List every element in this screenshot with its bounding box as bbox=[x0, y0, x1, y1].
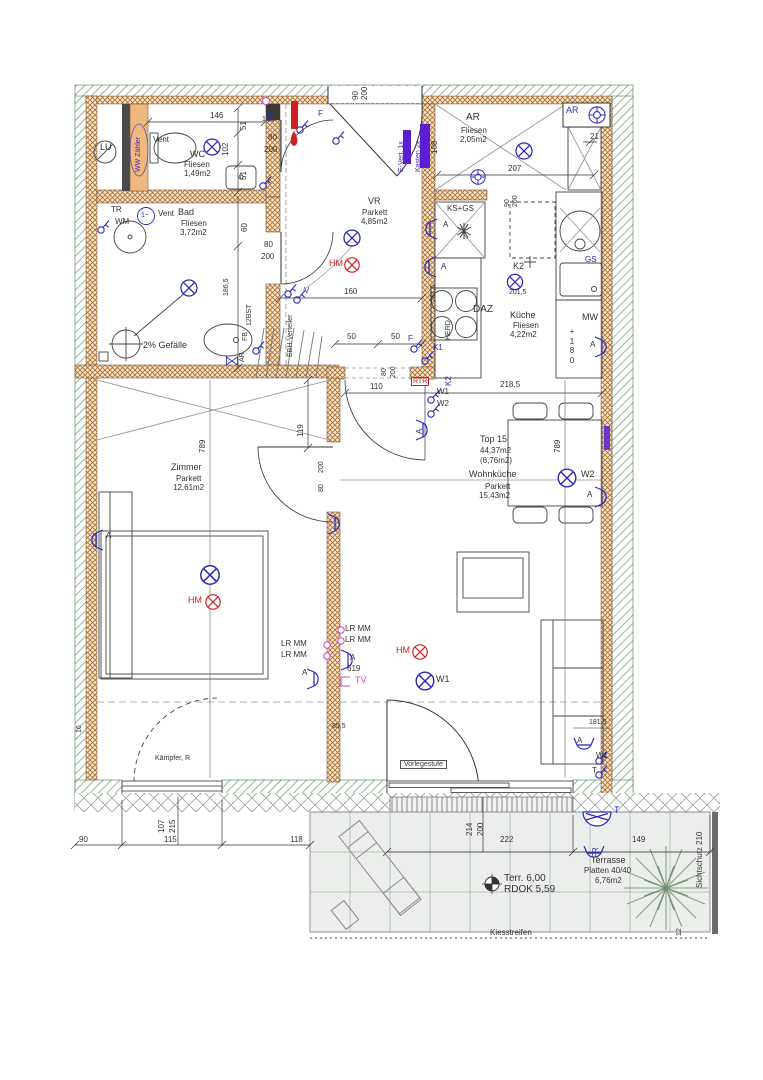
mw-height-label: + 1 8 0 bbox=[567, 327, 577, 365]
w2-label-kitchen: W2 bbox=[437, 400, 449, 408]
dim-218-5: 218,5 bbox=[500, 381, 520, 389]
rtr-label: RTR bbox=[411, 377, 429, 386]
dim-222: 222 bbox=[500, 836, 513, 844]
wc-vent-label: Vent bbox=[153, 136, 169, 144]
dim-149: 149 bbox=[632, 836, 645, 844]
kiesstreifen-note: Kiesstreifen bbox=[490, 929, 532, 937]
dim-619: 619 bbox=[347, 665, 360, 673]
ksgs-label: KS+GS bbox=[447, 205, 474, 213]
w2-label-wohn: W2 bbox=[581, 470, 595, 479]
dim-90-pass: 90 bbox=[504, 199, 511, 207]
wohn-room-name: Wohnküche bbox=[469, 470, 516, 479]
dim-85-5: 85,5 bbox=[332, 723, 346, 730]
dim-16: 16 bbox=[76, 725, 83, 733]
a-label-tv: A bbox=[350, 654, 355, 662]
dim-50-left: 50 bbox=[347, 333, 356, 341]
dim-789-zimmer: 789 bbox=[199, 440, 207, 453]
terrasse-name: Terrasse bbox=[591, 856, 626, 865]
vr-area: 4,85m2 bbox=[361, 218, 388, 226]
herd-label: HERD bbox=[445, 320, 452, 340]
a-label-mw: A bbox=[590, 341, 595, 349]
dim-160: 160 bbox=[344, 288, 357, 296]
wc-area: 1,49m2 bbox=[184, 170, 211, 178]
dim-21: 21 bbox=[590, 133, 599, 141]
w1-label-kitchen: W1 bbox=[437, 388, 449, 396]
wm-label: WM bbox=[115, 218, 129, 226]
wc-room-name: WC bbox=[190, 150, 205, 159]
ar-area: 2,05m2 bbox=[460, 136, 487, 144]
fb-label: FB bbox=[242, 332, 249, 341]
floor-plan-drawing bbox=[0, 0, 763, 1080]
v-label: V bbox=[304, 287, 309, 295]
dim-60: 60 bbox=[241, 223, 249, 232]
f-label-vr: F bbox=[408, 335, 413, 343]
evert-label: E-Vert. 1x bbox=[398, 141, 405, 172]
ww-zaehler-label: WW Zähler bbox=[135, 137, 142, 172]
dim-80-bad-door: 80 bbox=[264, 241, 273, 249]
hm-zimmer-label: HM bbox=[188, 596, 202, 605]
dim-186-5: 186,5 bbox=[223, 278, 230, 296]
tr-label: TR bbox=[111, 206, 122, 214]
ebh-label: EBH-Verteiler bbox=[287, 315, 294, 357]
lrmm-right-1: LR MM bbox=[345, 625, 371, 633]
dim-50-right: 50 bbox=[391, 333, 400, 341]
ar-riser-label: AR bbox=[239, 352, 246, 362]
daz-label: DAZ bbox=[473, 305, 493, 316]
lrmm-left-2: LR MM bbox=[281, 651, 307, 659]
phase-label: 1~ bbox=[141, 212, 149, 219]
dim-200-bad-door: 200 bbox=[261, 253, 274, 261]
k1-label: K1 bbox=[433, 344, 443, 352]
unit-terr-area: (6,76m2) bbox=[480, 457, 512, 465]
dim-789-wohn: 789 bbox=[554, 440, 562, 453]
lr-label-entry: LR bbox=[268, 112, 276, 122]
dim-110: 110 bbox=[370, 383, 383, 391]
dim-12: 12 bbox=[676, 928, 683, 936]
dim-201-5-left: 201,5 bbox=[430, 284, 437, 302]
vorlegestufe-note: Vorlegestufe bbox=[400, 760, 447, 769]
dim-115: 115 bbox=[164, 836, 177, 844]
dim-207: 207 bbox=[508, 165, 521, 173]
k2-label: K2 bbox=[513, 262, 524, 271]
a-label-zimmer: A bbox=[106, 532, 111, 540]
mw-label: MW bbox=[582, 313, 598, 322]
a-label-terrdoor: A bbox=[577, 737, 582, 745]
gs-label: GS bbox=[585, 256, 597, 264]
dim-118: 118 bbox=[290, 836, 303, 844]
kasten-label: Kasten 2x bbox=[415, 141, 422, 172]
dim-51-lower: 51 bbox=[240, 171, 248, 180]
k2-rot-label: K2 bbox=[445, 376, 453, 386]
terrace-rdok: RDOK 5,59 bbox=[504, 885, 555, 896]
terrasse-area: 6,76m2 bbox=[595, 877, 622, 885]
hm-wohn-label: HM bbox=[396, 646, 410, 655]
hm-vr-label: HM bbox=[329, 259, 343, 268]
dim-80-zimmer-door: 80 bbox=[318, 484, 325, 492]
lrmm-left-1: LR MM bbox=[281, 640, 307, 648]
dim-107: 107 bbox=[158, 820, 166, 833]
shaft-wall bbox=[122, 104, 130, 191]
a-label-kitchen-wall: A bbox=[441, 263, 446, 271]
dim-201-5-k2: 201,5 bbox=[509, 289, 527, 296]
w1-label-terrdoor: W1 bbox=[596, 752, 608, 760]
bad-area: 3,72m2 bbox=[180, 229, 207, 237]
dim-215: 215 bbox=[169, 820, 177, 833]
bad-vent-label: Vent bbox=[158, 210, 174, 218]
dim-80-wc-door: 80 bbox=[268, 134, 277, 142]
terrace-level: Terr. 6,00 bbox=[504, 874, 546, 885]
dim-51-upper: 51 bbox=[240, 121, 248, 130]
unit-area: 44,37m2 bbox=[480, 447, 511, 455]
t-label-terrace: T bbox=[614, 806, 620, 815]
dim-119: 119 bbox=[297, 424, 305, 437]
ar-room-name: AR bbox=[466, 113, 480, 124]
bst-label: 12BST bbox=[246, 305, 253, 326]
zimmer-area: 12,61m2 bbox=[173, 484, 204, 492]
dim-214: 214 bbox=[466, 823, 474, 836]
a-label-zimmer-wall: A bbox=[302, 669, 307, 677]
dim-102: 102 bbox=[222, 143, 230, 156]
dim-181-5: 181,5 bbox=[589, 719, 607, 726]
dim-90-bottom: 90 bbox=[79, 836, 88, 844]
vr-room-name: VR bbox=[368, 197, 381, 206]
gefaelle-label: 2% Gefälle bbox=[143, 341, 187, 350]
w1-label-wohn: W1 bbox=[436, 675, 450, 684]
ar-corner-label: AR bbox=[566, 106, 579, 115]
kaempfer-note: Kämpfer, R bbox=[155, 755, 190, 762]
unit-label: Top 15 bbox=[480, 435, 507, 444]
dim-200-bottom: 200 bbox=[477, 823, 485, 836]
zimmer-room-name: Zimmer bbox=[171, 463, 202, 472]
dim-200-wc-door: 200 bbox=[264, 146, 277, 154]
tv-label: TV bbox=[355, 676, 367, 685]
terrasse-floor: Platten 40/40 bbox=[584, 867, 631, 875]
bad-room-name: Bad bbox=[178, 208, 194, 217]
a-label-ks: A bbox=[443, 221, 448, 229]
t-label-terrdoor: T bbox=[592, 767, 597, 775]
threshold bbox=[390, 797, 573, 814]
dim-108: 108 bbox=[431, 141, 439, 154]
dim-146: 146 bbox=[210, 112, 223, 120]
dim-200-pass: 200 bbox=[512, 195, 519, 207]
floor-plan: 146 51 102 51 10 80 200 90 200 F LR E-Ve… bbox=[0, 0, 763, 1080]
switch-f-label: F bbox=[318, 110, 323, 118]
lu-label: LU bbox=[100, 143, 112, 152]
a-label-wohn: A bbox=[587, 491, 592, 499]
lrmm-right-2: LR MM bbox=[345, 636, 371, 644]
dim-200-zimmer-door: 200 bbox=[318, 461, 325, 473]
dim-80-opening: 80 bbox=[381, 368, 388, 376]
a-rot-label: A bbox=[416, 429, 424, 434]
kueche-room-name: Küche bbox=[510, 311, 536, 320]
dim-200-entry: 200 bbox=[361, 87, 369, 100]
sichtschutz-note: Sichtschutz 210 bbox=[696, 832, 704, 888]
wohn-area: 15,43m2 bbox=[479, 492, 510, 500]
dim-200-opening: 200 bbox=[390, 366, 397, 378]
kueche-area: 4,22m2 bbox=[510, 331, 537, 339]
